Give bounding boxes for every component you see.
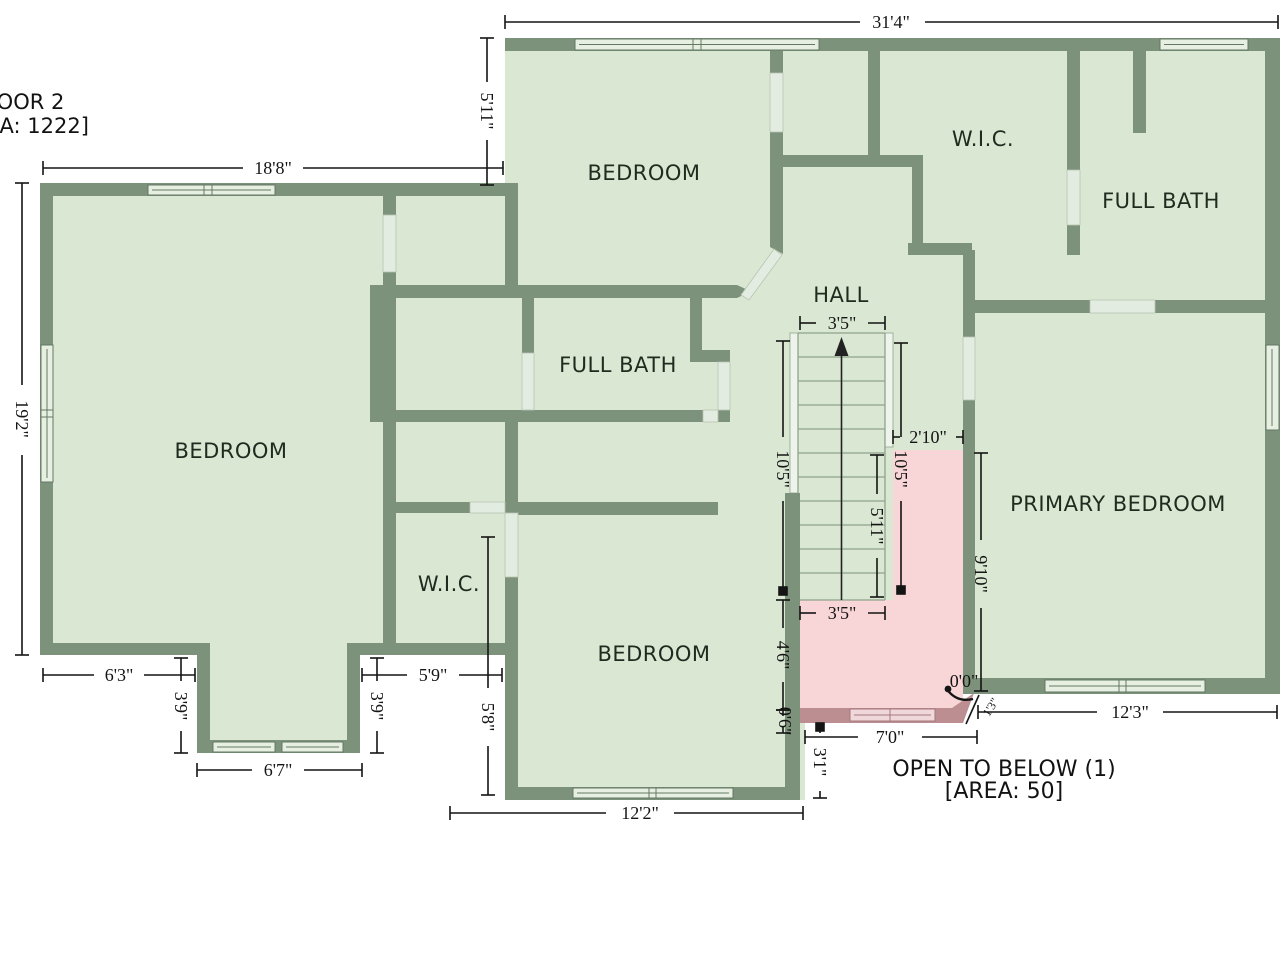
room-label-full-bath-mid: FULL BATH <box>559 353 677 377</box>
dimension-label-d16: 2'10" <box>909 427 947 447</box>
dimension-label-d3: 5'11" <box>477 93 497 130</box>
dimension-label-d23: 12'3" <box>1111 702 1149 722</box>
dimension-d24: 0'0" <box>950 671 979 691</box>
dimension-label-d13: 10'5" <box>773 450 793 488</box>
dimension-d4: 19'2" <box>12 183 32 655</box>
dimension-d3: 5'11" <box>477 38 497 185</box>
dimension-d20: 3'1" <box>810 723 830 798</box>
room-label-primary-bedroom: PRIMARY BEDROOM <box>1010 492 1226 516</box>
dimension-label-d18: 4'6" <box>773 641 793 670</box>
dimension-d6: 3'9" <box>171 658 191 753</box>
dimension-d23: 12'3" <box>978 702 1277 722</box>
open-below-window <box>850 709 935 721</box>
dimension-label-d6: 3'9" <box>171 692 191 721</box>
dimension-d9: 5'9" <box>362 665 502 685</box>
dimension-label-d1: 31'4" <box>872 12 910 32</box>
floor-plan-svg: 31'4"18'8"5'11"19'2"6'3"3'9"6'7"3'9"5'9"… <box>0 0 1280 960</box>
dimension-label-d19: 0'6" <box>775 707 795 736</box>
dimension-d5: 6'3" <box>43 665 195 685</box>
dimension-label-d2: 18'8" <box>254 158 292 178</box>
room-label-bedroom-left: BEDROOM <box>174 439 287 463</box>
dimension-label-d15: 5'11" <box>867 508 887 545</box>
dimension-label-d21: 7'0" <box>876 727 905 747</box>
dimension-d1: 31'4" <box>505 12 1278 32</box>
dimension-d11: 12'2" <box>450 803 803 823</box>
dimension-label-d12: 3'5" <box>828 313 857 333</box>
dimension-label-d25: 1'3" <box>980 695 1002 719</box>
room-label-full-bath-top: FULL BATH <box>1102 189 1220 213</box>
room-label-wic-bottom: W.I.C. <box>418 572 480 596</box>
dimension-label-d24: 0'0" <box>950 671 979 691</box>
dimension-label-d7: 6'7" <box>264 760 293 780</box>
room-label-hall: HALL <box>813 283 869 307</box>
open-to-below-line2: [AREA: 50] <box>945 779 1063 804</box>
dimension-label-d22: 9'10" <box>971 555 991 593</box>
room-label-bedroom-top: BEDROOM <box>587 161 700 185</box>
dimension-d21: 7'0" <box>805 727 977 747</box>
dimension-label-d9: 5'9" <box>419 665 448 685</box>
dimension-d25: 1'3" <box>980 695 1002 719</box>
dimension-label-d11: 12'2" <box>621 803 659 823</box>
dimension-label-d8: 3'9" <box>367 692 387 721</box>
dimension-label-d17: 3'5" <box>828 603 857 623</box>
dimension-label-d14: 10'5" <box>891 450 911 488</box>
dimension-d8: 3'9" <box>367 658 387 753</box>
dimension-d19: 0'6" <box>775 707 795 736</box>
dimension-label-d10: 5'8" <box>478 703 498 732</box>
room-label-bedroom-bottom: BEDROOM <box>597 642 710 666</box>
dimension-label-d5: 6'3" <box>105 665 134 685</box>
room-label-wic-top: W.I.C. <box>952 127 1014 151</box>
dimension-label-d4: 19'2" <box>12 400 32 438</box>
open-to-below-label: OPEN TO BELOW (1) [AREA: 50] <box>892 757 1115 804</box>
floor-plan-page: FLOOR 2 [AREA: 1222] <box>0 0 1280 960</box>
dimension-d7: 6'7" <box>197 760 362 780</box>
dimension-d2: 18'8" <box>43 158 503 178</box>
dimension-label-d20: 3'1" <box>810 748 830 777</box>
